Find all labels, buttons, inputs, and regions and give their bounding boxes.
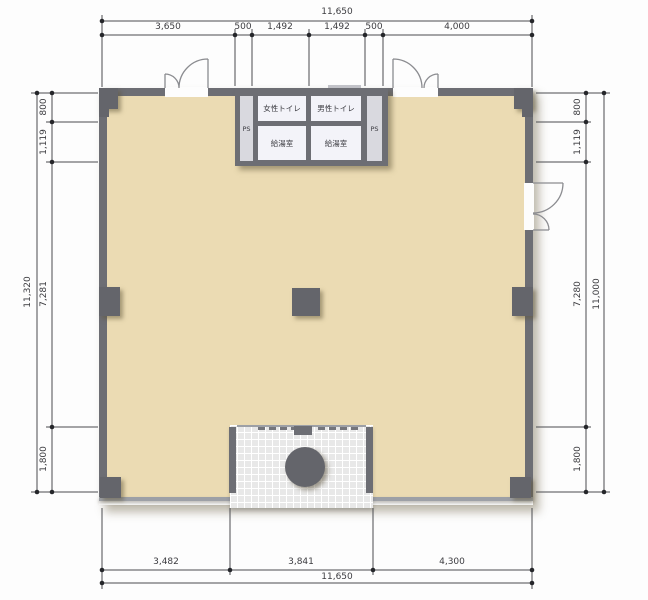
dim-left-seg-2: 7,281 bbox=[39, 281, 49, 307]
column-bottom-left bbox=[100, 477, 121, 498]
dim-left-total: 11,320 bbox=[23, 276, 33, 308]
room-label-ps-left: PS bbox=[242, 125, 250, 133]
room-label-mens-toilet: 男性トイレ bbox=[317, 103, 355, 114]
dim-right-seg-2: 7,280 bbox=[573, 281, 583, 307]
entrance-step bbox=[294, 426, 312, 435]
dim-bottom-seg-1: 3,841 bbox=[288, 557, 314, 567]
column-top-right-step bbox=[522, 109, 533, 117]
column-center bbox=[292, 288, 320, 316]
entrance-door-dashes-right bbox=[318, 427, 362, 430]
room-label-kitchenette-left: 給湯室 bbox=[271, 138, 294, 149]
floor-plan-canvas: PS 女性トイレ 男性トイレ 給湯室 給湯室 PS bbox=[0, 0, 648, 600]
dim-right-seg-0: 800 bbox=[573, 98, 583, 115]
dim-bottom-total: 11,650 bbox=[321, 572, 353, 582]
room-ps-right: PS bbox=[367, 96, 382, 161]
dim-top-seg-2: 1,492 bbox=[267, 22, 293, 32]
dim-top-seg-5: 4,000 bbox=[444, 22, 470, 32]
room-mens-toilet: 男性トイレ bbox=[311, 96, 361, 121]
dim-right-total: 11,000 bbox=[592, 278, 602, 310]
room-kitchenette-left: 給湯室 bbox=[258, 126, 306, 160]
room-label-ps-right: PS bbox=[370, 125, 378, 133]
dim-top-seg-0: 3,650 bbox=[155, 22, 181, 32]
vestibule-wall-right bbox=[366, 427, 373, 493]
dim-right-seg-1: 1,119 bbox=[573, 129, 583, 155]
dim-right-seg-3: 1,800 bbox=[573, 446, 583, 472]
dim-bottom-seg-2: 4,300 bbox=[439, 557, 465, 567]
room-ps-left: PS bbox=[240, 96, 253, 161]
door-swing-right bbox=[533, 183, 563, 230]
column-top-left bbox=[99, 88, 118, 109]
room-label-womens-toilet: 女性トイレ bbox=[263, 103, 301, 114]
vestibule-wall-left bbox=[229, 427, 236, 493]
dim-top-seg-1: 500 bbox=[234, 22, 251, 32]
dim-top-seg-3: 1,492 bbox=[324, 22, 350, 32]
dim-bottom-seg-0: 3,482 bbox=[153, 557, 179, 567]
service-block: PS 女性トイレ 男性トイレ 給湯室 給湯室 PS bbox=[235, 88, 388, 166]
column-round-entrance bbox=[285, 447, 325, 487]
door-swing-top-left bbox=[165, 59, 208, 88]
door-opening-top-right bbox=[393, 87, 438, 97]
dim-left-seg-1: 1,119 bbox=[39, 129, 49, 155]
dim-top-total: 11,650 bbox=[321, 7, 353, 17]
dim-top-seg-4: 500 bbox=[365, 22, 382, 32]
column-top-right bbox=[514, 88, 533, 109]
room-label-kitchenette-right: 給湯室 bbox=[325, 138, 348, 149]
column-mid-left bbox=[99, 287, 120, 316]
column-mid-right bbox=[512, 287, 533, 316]
room-kitchenette-right: 給湯室 bbox=[311, 126, 361, 160]
dimension-lines-bottom bbox=[100, 508, 535, 589]
door-opening-right bbox=[524, 183, 534, 230]
door-opening-top-left bbox=[165, 87, 208, 97]
column-bottom-right bbox=[510, 477, 531, 498]
dim-left-seg-0: 800 bbox=[39, 98, 49, 115]
column-top-left-step bbox=[99, 109, 109, 117]
dim-left-seg-3: 1,800 bbox=[39, 446, 49, 472]
room-womens-toilet: 女性トイレ bbox=[258, 96, 306, 121]
door-swing-top-right bbox=[393, 59, 438, 88]
